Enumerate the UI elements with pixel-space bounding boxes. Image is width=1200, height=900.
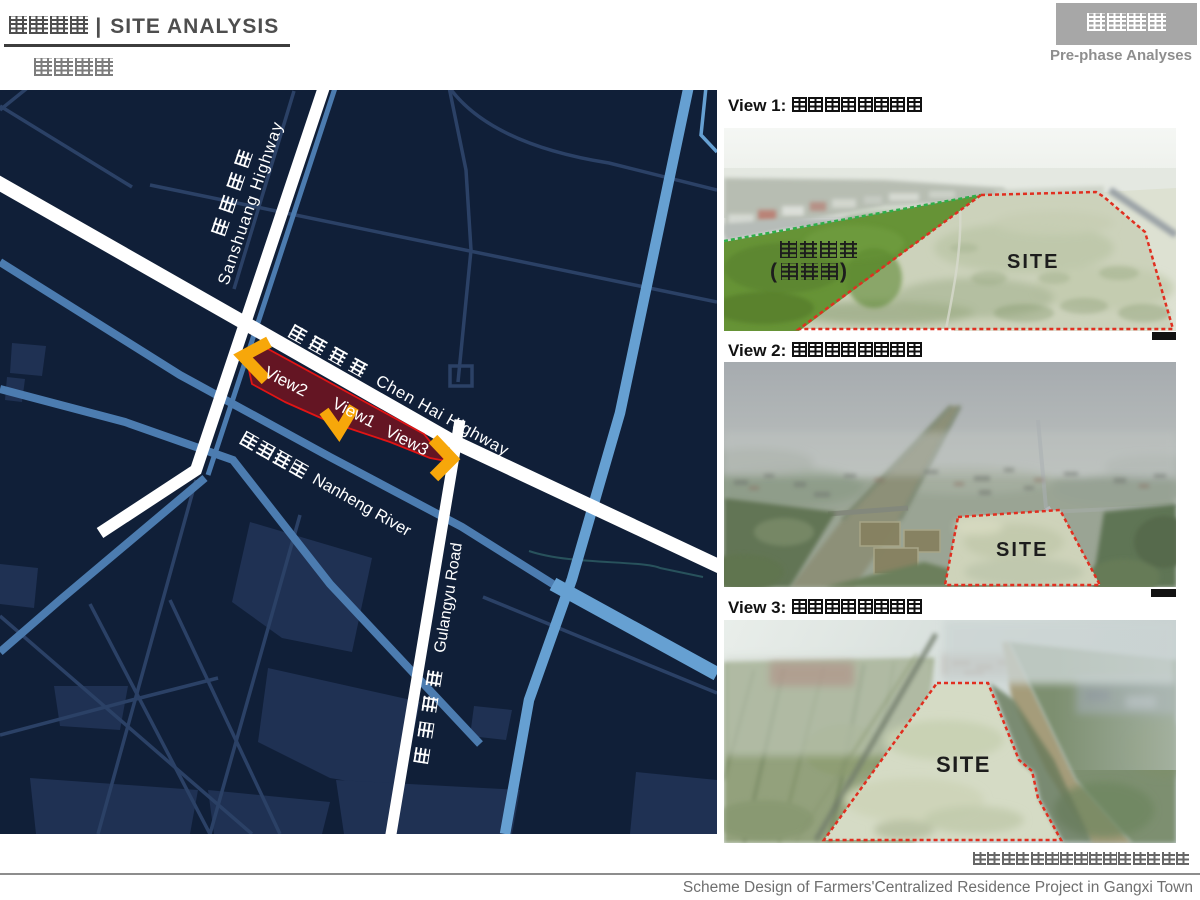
svg-text:): ) <box>840 260 847 283</box>
svg-text:SITE: SITE <box>936 752 991 777</box>
svg-text:SITE: SITE <box>996 539 1048 561</box>
svg-text:(: ( <box>770 260 777 283</box>
svg-text:SITE: SITE <box>1007 251 1059 273</box>
